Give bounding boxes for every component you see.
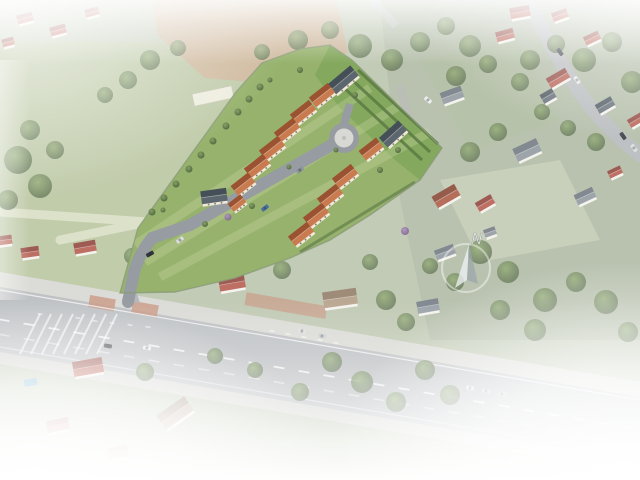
fade-corner-bottom-right: [330, 250, 640, 480]
tree: [377, 167, 383, 173]
tree: [161, 208, 166, 213]
fade-corner-bottom-left: [0, 280, 340, 480]
tree: [202, 221, 208, 227]
tree: [334, 148, 339, 153]
fade-corner-top-right: [420, 0, 640, 140]
aerial-scene: N: [0, 0, 640, 480]
tree: [249, 203, 255, 209]
cul-de-sac-center: [342, 136, 346, 140]
tree: [149, 209, 156, 216]
aerial-screenshot: N: [0, 0, 640, 480]
tree: [225, 214, 232, 221]
fade-corner-top-left: [0, 0, 300, 200]
compass-north-label: N: [471, 230, 482, 248]
tree: [401, 227, 409, 235]
tree: [395, 147, 401, 153]
tree: [352, 92, 358, 98]
